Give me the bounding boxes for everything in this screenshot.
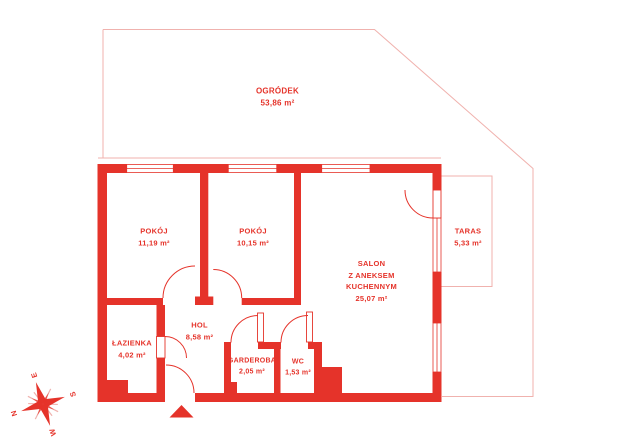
door-arc-garderoba: [231, 316, 258, 343]
room-name: POKÓJ: [138, 225, 170, 237]
door-arc-taras: [405, 190, 433, 218]
door-leaf-taras: [433, 190, 441, 218]
room-area: 2,05 m²: [228, 367, 276, 378]
door-leaf-wc: [307, 312, 313, 342]
label-taras: TARAS 5,33 m²: [454, 225, 482, 248]
window-pokoj2: [228, 165, 276, 173]
door-arc-entrance: [166, 365, 194, 393]
door-arc-pokoj1: [163, 266, 195, 298]
room-name: POKÓJ: [237, 225, 269, 237]
room-name: KUCHENNYM: [346, 281, 397, 293]
room-area: 53,86 m²: [256, 97, 299, 109]
window-pokoj1: [127, 165, 174, 173]
room-name: ŁAZIENKA: [112, 337, 152, 349]
door-leaf-lazienka: [157, 337, 166, 359]
compass-rose: N E S W: [0, 362, 88, 447]
floor-plan-drawing: N E S W: [0, 0, 633, 448]
entrance-marker: [170, 405, 194, 418]
label-pokoj-1: POKÓJ 11,19 m²: [138, 225, 170, 248]
room-name: Z ANEKSEM: [346, 269, 397, 281]
door-arc-pokoj2: [213, 270, 241, 299]
room-name: GARDEROBA: [228, 357, 276, 368]
room-area: 1,53 m²: [285, 368, 311, 379]
window-salon-right-lower: [433, 323, 441, 372]
label-salon: SALON Z ANEKSEM KUCHENNYM 25,07 m²: [346, 258, 397, 304]
compass-label-w: W: [47, 427, 58, 437]
room-name: HOL: [186, 319, 214, 331]
label-wc: WC 1,53 m²: [285, 358, 311, 379]
window-salon-right-upper: [433, 218, 441, 272]
label-garderoba: GARDEROBA 2,05 m²: [228, 357, 276, 378]
room-area: 25,07 m²: [346, 293, 397, 305]
room-area: 5,33 m²: [454, 237, 482, 249]
label-pokoj-2: POKÓJ 10,15 m²: [237, 225, 269, 248]
label-ogrodek: OGRÓDEK 53,86 m²: [256, 86, 299, 109]
room-name: OGRÓDEK: [256, 86, 299, 98]
room-area: 8,58 m²: [186, 331, 214, 343]
room-area: 10,15 m²: [237, 237, 269, 249]
room-area: 11,19 m²: [138, 237, 170, 249]
compass-label-e: E: [29, 372, 39, 380]
door-arc-lazienka: [165, 337, 187, 359]
compass-label-s: S: [68, 390, 78, 398]
compass-label-n: N: [9, 409, 19, 417]
label-lazienka: ŁAZIENKA 4,02 m²: [112, 337, 152, 360]
label-hol: HOL 8,58 m²: [186, 319, 214, 342]
room-name: WC: [285, 358, 311, 369]
room-name: TARAS: [454, 225, 482, 237]
door-arc-wc: [281, 316, 308, 343]
floor-plan: N E S W OGRÓDEK 53,86 m² POKÓJ 11,19 m² …: [0, 0, 633, 448]
window-salon-top: [322, 165, 370, 173]
door-leaf-garderoba: [258, 313, 264, 342]
room-name: SALON: [346, 258, 397, 270]
room-area: 4,02 m²: [112, 349, 152, 361]
